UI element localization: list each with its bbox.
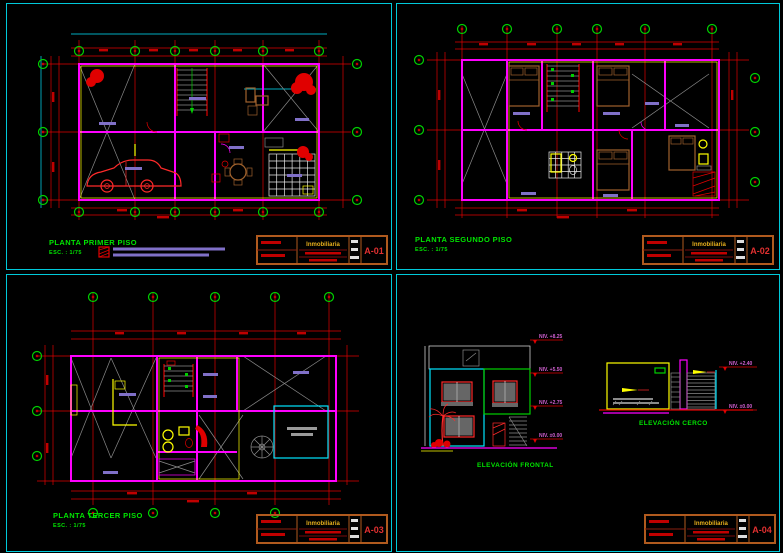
plan3-scale: ESC. : 1/75 xyxy=(53,523,86,529)
kitchen-counters xyxy=(71,379,137,425)
stairs xyxy=(547,64,579,112)
plan2-scale: ESC. : 1/75 xyxy=(415,247,448,253)
sheet-number: A-03 xyxy=(364,525,384,535)
first-floor-plan-svg: PLANTA PRIMER PISO ESC. : 1/75 Inmobilia… xyxy=(7,4,389,267)
fence-elevation-title: ELEVACIÓN CERCO xyxy=(639,418,708,427)
level-label-4: NIV. ±0.00 xyxy=(539,433,562,439)
titleblock-company: Inmobiliaria xyxy=(306,242,340,248)
walls xyxy=(462,60,719,200)
roof-terrace-room xyxy=(274,406,328,458)
panel-elevations: NIV. +8.25 NIV. +5.50 NIV. +2.75 NIV. ±0… xyxy=(396,274,780,552)
panel-first-floor-plan: PLANTA PRIMER PISO ESC. : 1/75 Inmobilia… xyxy=(6,3,392,270)
sofa-set xyxy=(246,88,268,115)
titleblock-company: Inmobiliaria xyxy=(694,521,728,527)
car-block xyxy=(87,160,181,192)
beds xyxy=(509,66,695,190)
panel-third-floor-plan: PLANTA TERCER PISO ESC. : 1/75 Inmobilia… xyxy=(6,274,392,552)
fence-level-base: NIV. ±0.00 xyxy=(729,404,752,410)
fence-level-top: NIV. +2.40 xyxy=(729,361,753,367)
stairs xyxy=(164,361,193,397)
plan3-title: PLANTA TERCER PISO xyxy=(53,511,143,520)
title-block: Inmobiliaria A-02 xyxy=(643,236,773,264)
panel-second-floor-plan: PLANTA SEGUNDO PISO ESC. : 1/75 Inmobili… xyxy=(396,3,780,270)
front-elevation-title: ELEVACIÓN FRONTAL xyxy=(477,460,554,469)
second-floor-plan-svg: PLANTA SEGUNDO PISO ESC. : 1/75 Inmobili… xyxy=(397,4,777,267)
title-block: Inmobiliaria A-04 xyxy=(645,515,775,543)
level-label-3: NIV. +2.75 xyxy=(539,400,563,406)
plan1-scale: ESC. : 1/75 xyxy=(49,250,82,256)
room-labels xyxy=(99,97,309,177)
bathroom-tiles xyxy=(549,152,581,178)
third-floor-plan-svg: PLANTA TERCER PISO ESC. : 1/75 Inmobilia… xyxy=(7,275,389,549)
title-block: Inmobiliaria A-01 xyxy=(257,236,387,264)
title-block: Inmobiliaria A-03 xyxy=(257,515,387,543)
level-label-1: NIV. +8.25 xyxy=(539,334,563,340)
legend-note xyxy=(99,247,225,257)
axis-bubbles xyxy=(33,293,334,518)
fence-elevation: NIV. +2.40 NIV. ±0.00 ELEVACIÓN CERCO xyxy=(599,360,757,427)
stairs xyxy=(177,68,207,116)
plan1-title: PLANTA PRIMER PISO xyxy=(49,238,137,247)
titleblock-company: Inmobiliaria xyxy=(306,521,340,527)
titleblock-company: Inmobiliaria xyxy=(692,242,726,248)
cad-drawing-sheet: PLANTA PRIMER PISO ESC. : 1/75 Inmobilia… xyxy=(0,0,783,553)
kitchen-tiles xyxy=(265,138,315,196)
front-elevation: NIV. +8.25 NIV. +5.50 NIV. +2.75 NIV. ±0… xyxy=(421,334,563,469)
axis-bubbles xyxy=(415,25,760,205)
axis-grid xyxy=(43,40,351,220)
plan2-title: PLANTA SEGUNDO PISO xyxy=(415,235,512,244)
dining-table xyxy=(225,159,252,185)
bathroom-2 xyxy=(697,140,711,170)
sheet-number: A-02 xyxy=(750,246,770,256)
spiral-stair xyxy=(251,436,273,458)
sheet-number: A-04 xyxy=(752,525,772,535)
level-label-2: NIV. +5.50 xyxy=(539,367,563,373)
sheet-number: A-01 xyxy=(364,246,384,256)
walls xyxy=(79,64,319,200)
void-cross-lines xyxy=(71,356,326,479)
elevations-svg: NIV. +8.25 NIV. +5.50 NIV. +2.75 NIV. ±0… xyxy=(397,275,777,549)
